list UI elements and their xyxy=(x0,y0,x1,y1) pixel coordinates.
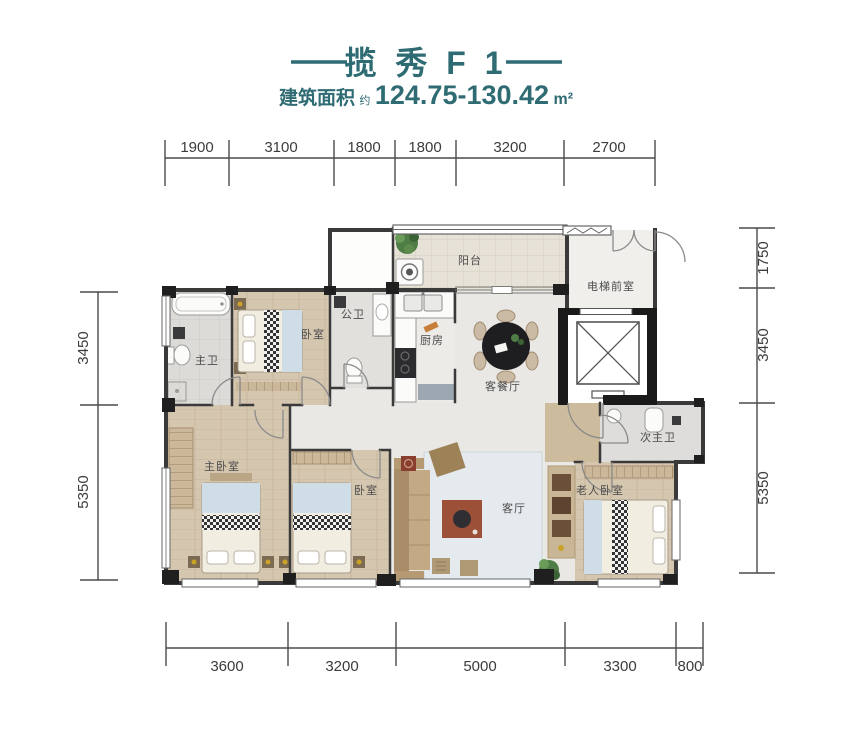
dim-top-6: 2700 xyxy=(592,139,625,156)
living-room-furniture xyxy=(394,442,560,582)
dim-top-4: 1800 xyxy=(408,139,441,156)
elevator-door-icon xyxy=(580,309,632,315)
wardrobe-icon xyxy=(585,466,673,478)
lobby-outer-door xyxy=(655,232,685,262)
area-approx: 约 xyxy=(359,94,370,107)
hall-lamp-icon xyxy=(558,545,564,551)
wardrobe-icon xyxy=(169,428,193,508)
dim-bottom-2: 3200 xyxy=(325,658,358,675)
dim-left-1: 3450 xyxy=(75,331,92,364)
dim-bottom-5: 800 xyxy=(677,658,702,675)
label-bedroom-top: 卧室 xyxy=(301,327,325,341)
label-living-room: 客厅 xyxy=(502,501,526,515)
bed-bench xyxy=(210,473,252,481)
area-subtitle: 建筑面积 约 124.75-130.42 m² xyxy=(279,80,573,110)
dim-top-2: 3100 xyxy=(264,139,297,156)
toilet-icon xyxy=(645,408,663,432)
dim-top-3: 1800 xyxy=(347,139,380,156)
side-table-icon xyxy=(401,456,416,471)
elder-bedroom-window xyxy=(598,579,660,587)
toilet-icon xyxy=(174,345,190,365)
label-master-bath: 主卫 xyxy=(195,354,219,367)
label-kitchen: 厨房 xyxy=(420,334,444,347)
tv-cabinet-strip xyxy=(548,466,575,558)
dim-bottom-1: 3600 xyxy=(210,658,243,675)
label-second-master-bath: 次主卫 xyxy=(640,430,676,444)
header: 揽 秀 F 1 建筑面积 约 124.75-130.42 m² xyxy=(279,45,573,110)
wardrobe-icon xyxy=(293,452,351,464)
toilet-icon xyxy=(346,358,362,378)
washing-machine-icon xyxy=(396,259,423,285)
dim-right-1: 1750 xyxy=(755,241,772,274)
dim-bottom-3: 5000 xyxy=(463,658,496,675)
area-value: 124.75-130.42 xyxy=(375,80,549,110)
sofa-icon xyxy=(394,468,409,572)
elder-bedroom-side-window xyxy=(672,500,680,560)
page-title: 揽 秀 F 1 xyxy=(344,45,507,81)
label-dining-room: 客餐厅 xyxy=(485,379,521,393)
label-elevator-lobby: 电梯前室 xyxy=(587,279,635,293)
living-room-window xyxy=(400,579,530,587)
balcony-window xyxy=(393,225,567,234)
dim-right-2: 3450 xyxy=(755,328,772,361)
area-label: 建筑面积 xyxy=(279,86,355,109)
bath-cabinet-icon xyxy=(173,327,185,339)
dim-top-1: 1900 xyxy=(180,139,213,156)
right-dimension-line xyxy=(739,228,775,573)
floor-plan-canvas: 揽 秀 F 1 建筑面积 约 124.75-130.42 m² 1900 310… xyxy=(0,0,850,729)
label-elder-bedroom: 老人卧室 xyxy=(576,483,624,497)
kitchen-mat xyxy=(418,384,454,400)
dim-top-5: 3200 xyxy=(493,139,526,156)
entry-hall-floor xyxy=(545,403,600,462)
dim-bottom-4: 3300 xyxy=(603,658,636,675)
area-unit: m² xyxy=(553,91,573,108)
utility-room-floor xyxy=(330,230,393,290)
dim-right-3: 5350 xyxy=(755,471,772,504)
label-public-bath: 公卫 xyxy=(341,309,365,321)
label-balcony: 阳台 xyxy=(458,253,482,267)
bedroom-second-window xyxy=(296,579,376,587)
bed-bench xyxy=(236,382,302,391)
label-master-bedroom: 主卧室 xyxy=(204,459,240,473)
lobby-window xyxy=(563,226,611,235)
elevator-lobby-floor xyxy=(567,230,655,312)
floor-plan-page: 揽 秀 F 1 建筑面积 约 124.75-130.42 m² 1900 310… xyxy=(0,0,850,729)
master-bedroom-bottom-window xyxy=(182,579,258,587)
floor-cushion xyxy=(460,560,478,576)
label-bedroom-second: 卧室 xyxy=(354,483,378,497)
kitchen-sink-icon xyxy=(424,295,442,311)
dim-left-2: 5350 xyxy=(75,475,92,508)
